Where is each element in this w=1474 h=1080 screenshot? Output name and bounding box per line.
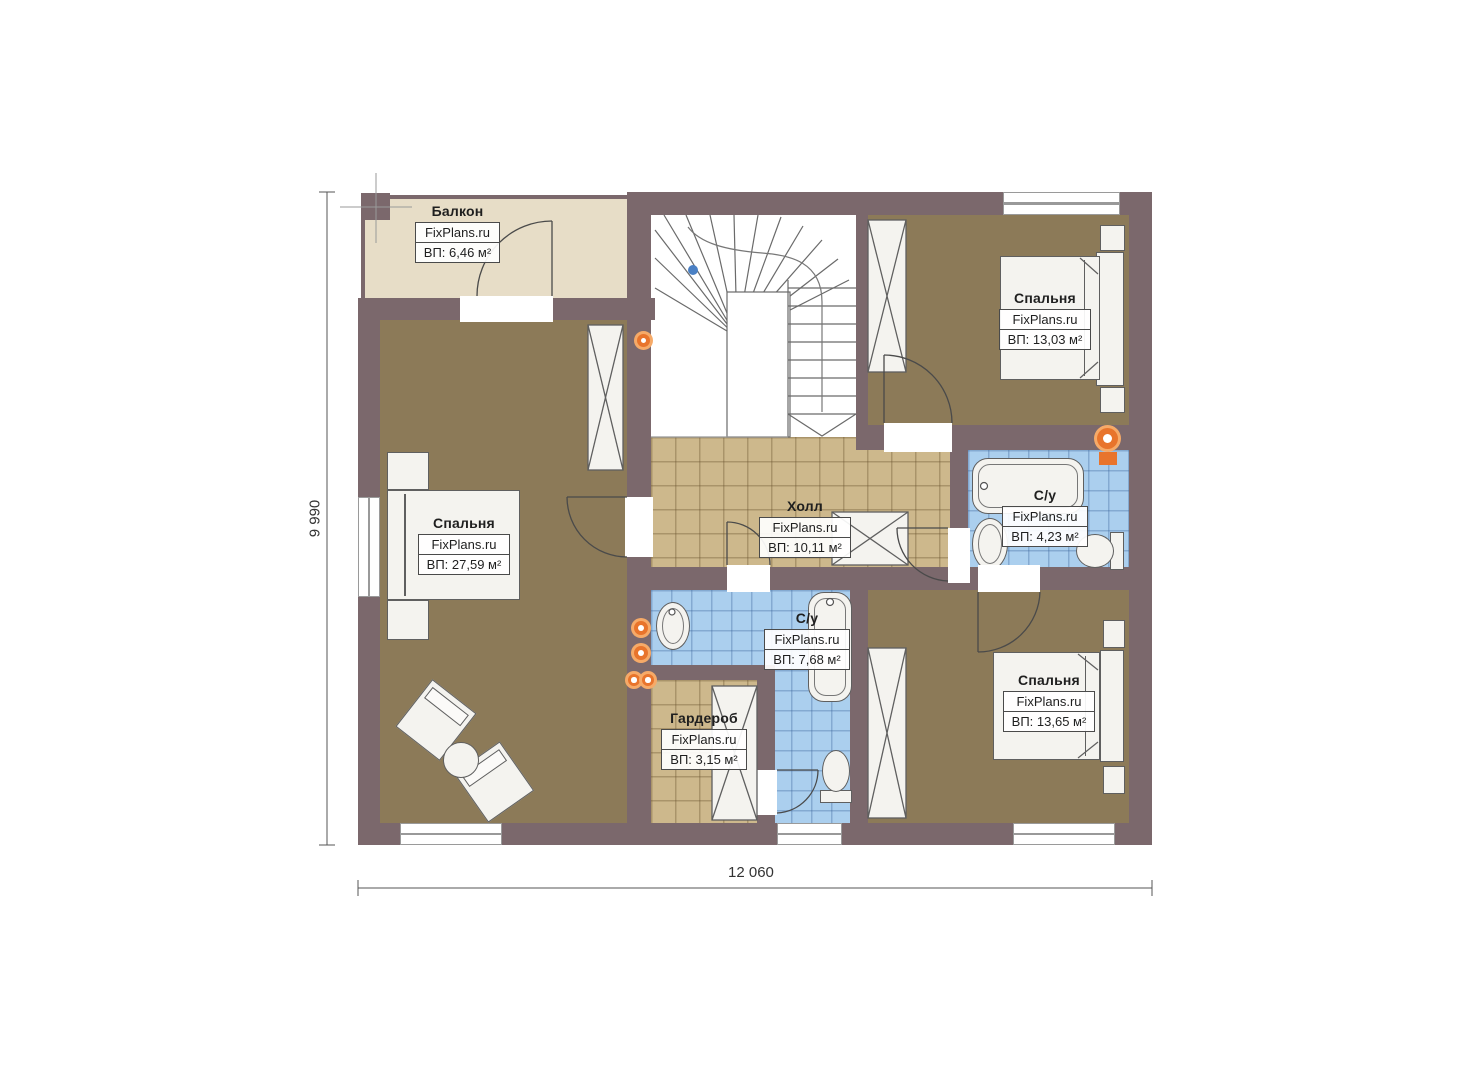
window-bottom-2	[777, 823, 842, 845]
brand-label: FixPlans.ru	[662, 730, 745, 749]
room-area: ВП: 4,23 м²	[1003, 526, 1086, 546]
room-name: С/у	[796, 610, 818, 626]
room-area: ВП: 13,65 м²	[1004, 711, 1095, 731]
stair-marker-icon	[688, 265, 698, 275]
door-opening-balcony	[460, 296, 553, 322]
wall-right	[1129, 192, 1152, 845]
label-wardrobe: Гардероб FixPlans.ru ВП: 3,15 м²	[644, 710, 764, 770]
wall-light-icon	[642, 674, 654, 686]
wall-light-icon	[637, 334, 650, 347]
window-bottom-3	[1013, 823, 1115, 845]
room-name: Гардероб	[670, 710, 738, 726]
brand-label: FixPlans.ru	[1000, 310, 1091, 329]
dimension-bottom: 12 060	[728, 864, 774, 881]
toilet-center-bathroom	[822, 750, 850, 792]
brand-label: FixPlans.ru	[1003, 507, 1086, 526]
balcony-pillar	[361, 193, 390, 220]
brand-label: FixPlans.ru	[419, 535, 510, 554]
room-name: Балкон	[432, 203, 484, 219]
wall-light-icon	[634, 646, 648, 660]
nightstand	[1103, 620, 1125, 648]
nightstand	[1103, 766, 1125, 794]
nightstand	[387, 600, 429, 640]
wall-hall-bottom	[651, 567, 1129, 590]
room-name: Спальня	[1014, 290, 1076, 306]
door-opening-bedroom-left	[625, 497, 653, 557]
label-bedroom-top-right: Спальня FixPlans.ru ВП: 13,03 м²	[985, 290, 1105, 350]
nightstand	[1100, 387, 1125, 413]
room-name: Спальня	[433, 515, 495, 531]
room-area: ВП: 27,59 м²	[419, 554, 510, 574]
wall-stair-bedroom	[856, 215, 868, 425]
dimension-left: 9 990	[306, 500, 323, 538]
door-opening-bedroom-top-right	[884, 423, 952, 452]
label-bedroom-bottom-right: Спальня FixPlans.ru ВП: 13,65 м²	[985, 672, 1113, 732]
room-area: ВП: 7,68 м²	[765, 649, 848, 669]
room-name: Холл	[787, 498, 823, 514]
coffee-table	[443, 742, 479, 778]
wall-light-icon	[628, 674, 640, 686]
brand-label: FixPlans.ru	[416, 223, 499, 242]
door-opening-bathroom-center	[727, 565, 770, 592]
label-bathroom-right: С/у FixPlans.ru ВП: 4,23 м²	[985, 487, 1105, 547]
room-name: С/у	[1034, 487, 1056, 503]
window-top	[1003, 192, 1120, 215]
towel-warmer-base	[1099, 452, 1117, 465]
label-balcony: Балкон FixPlans.ru ВП: 6,46 м²	[395, 203, 520, 263]
room-area: ВП: 13,03 м²	[1000, 329, 1091, 349]
sink-center-bathroom	[656, 602, 690, 650]
brand-label: FixPlans.ru	[760, 518, 850, 537]
window-bottom-1	[400, 823, 502, 845]
label-hall: Холл FixPlans.ru ВП: 10,11 м²	[745, 498, 865, 558]
towel-warmer-icon	[1097, 428, 1118, 449]
wall-light-icon	[634, 621, 648, 635]
label-bedroom-left: Спальня FixPlans.ru ВП: 27,59 м²	[400, 515, 528, 575]
room-stairwell	[651, 215, 856, 437]
door-opening-bedroom-bottom-right	[978, 565, 1040, 592]
room-area: ВП: 6,46 м²	[416, 242, 499, 262]
room-area: ВП: 10,11 м²	[760, 537, 850, 557]
door-opening-wardrobe	[755, 770, 777, 815]
room-name: Спальня	[1018, 672, 1080, 688]
brand-label: FixPlans.ru	[1004, 692, 1095, 711]
door-opening-bathroom-right	[948, 528, 970, 583]
nightstand	[1100, 225, 1125, 251]
floor-plan: Балкон FixPlans.ru ВП: 6,46 м² Спальня F…	[0, 0, 1474, 1080]
label-bathroom-center: С/у FixPlans.ru ВП: 7,68 м²	[747, 610, 867, 670]
brand-label: FixPlans.ru	[765, 630, 848, 649]
room-area: ВП: 3,15 м²	[662, 749, 745, 769]
nightstand	[387, 452, 429, 490]
window-left	[358, 497, 380, 597]
